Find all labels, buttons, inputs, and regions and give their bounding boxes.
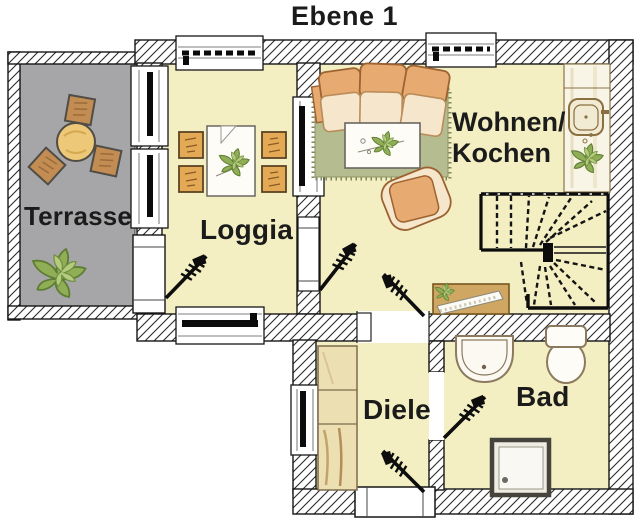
chair-icon bbox=[262, 166, 286, 192]
wall-diele-bad-lower bbox=[429, 440, 444, 490]
kitchen-counter-icon bbox=[564, 64, 610, 192]
terrace-stool-icon bbox=[91, 146, 122, 177]
terrace-wall-left bbox=[8, 52, 20, 320]
window-wohnen-top bbox=[426, 33, 496, 67]
kitchen-sink-icon bbox=[569, 99, 609, 135]
room-label-diele: Diele bbox=[363, 394, 431, 426]
window-loggia-bottom bbox=[176, 307, 264, 344]
washbasin-icon bbox=[456, 336, 513, 382]
room-label-wohnen-line1: Wohnen/ bbox=[452, 107, 565, 138]
chair-icon bbox=[262, 132, 286, 158]
terrace-wall-bottom bbox=[8, 306, 138, 319]
wall-right bbox=[609, 40, 633, 514]
wall-bottom bbox=[293, 489, 633, 514]
room-label-terrasse: Terrasse bbox=[24, 201, 132, 232]
window-terrace-1 bbox=[131, 66, 168, 146]
coffee-table-icon bbox=[345, 123, 420, 168]
room-label-wohnen-line2: Kochen bbox=[452, 138, 565, 169]
room-label-bad: Bad bbox=[516, 381, 570, 413]
toilet-icon bbox=[546, 326, 586, 383]
opening-diele-bad bbox=[429, 372, 444, 440]
window-terrace-2 bbox=[131, 149, 168, 228]
wall-diele-bad-upper bbox=[429, 341, 444, 372]
room-label-loggia: Loggia bbox=[200, 214, 293, 246]
window-loggia-top bbox=[176, 36, 263, 70]
window-diele-left bbox=[291, 385, 318, 455]
floor-plan: Ebene 1 Terrasse Loggia Wohnen/ Kochen D… bbox=[0, 0, 640, 530]
shower-icon bbox=[492, 440, 549, 495]
chair-icon bbox=[179, 166, 203, 192]
room-label-wohnen-kochen: Wohnen/ Kochen bbox=[452, 107, 565, 169]
sideboard-icon bbox=[433, 283, 509, 314]
wardrobe-icon bbox=[318, 346, 357, 490]
terrace-table-icon bbox=[57, 123, 95, 161]
chair-icon bbox=[179, 132, 203, 158]
terrace-stool-icon bbox=[65, 95, 95, 125]
page-title: Ebene 1 bbox=[291, 1, 398, 32]
floor-plan-graphic bbox=[0, 0, 640, 530]
door-leaf-frame bbox=[357, 313, 371, 341]
terrace-wall-top bbox=[8, 52, 138, 64]
